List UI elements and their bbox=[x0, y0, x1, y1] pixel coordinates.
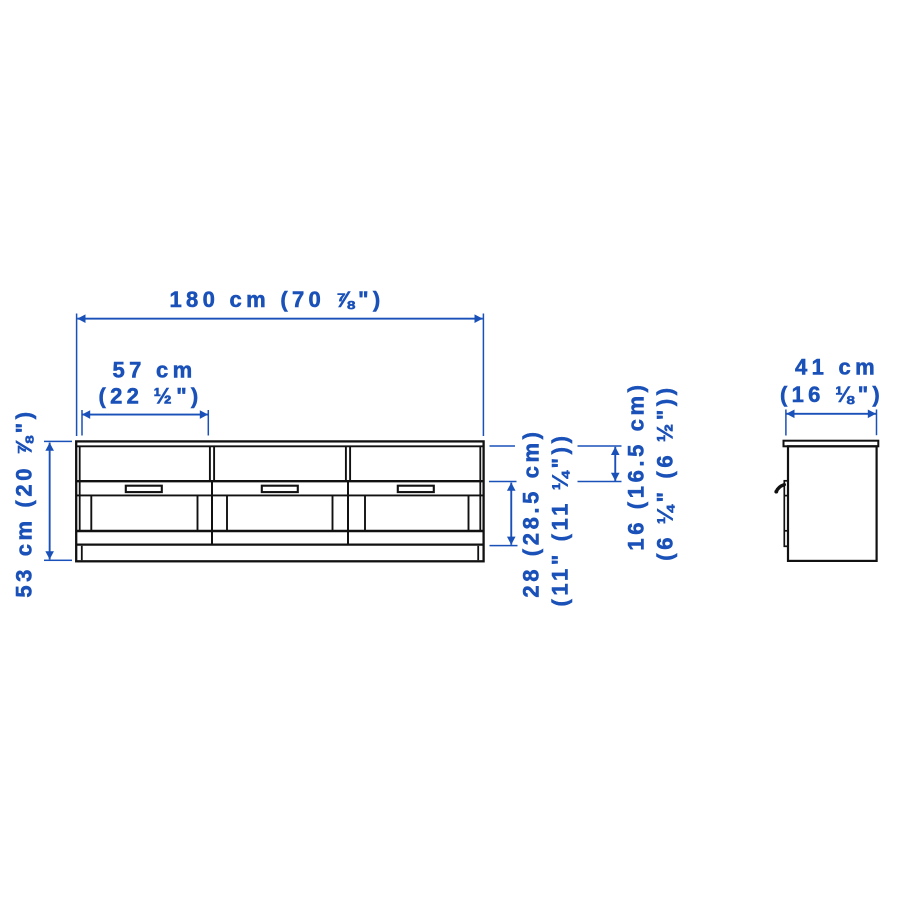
svg-text:180 cm (70 ⅞"): 180 cm (70 ⅞") bbox=[170, 287, 385, 312]
svg-text:(6 ¼" (6 ½")): (6 ¼" (6 ½")) bbox=[652, 384, 677, 560]
svg-text:41 cm: 41 cm bbox=[795, 355, 879, 380]
svg-text:(22 ½"): (22 ½") bbox=[98, 384, 202, 409]
svg-text:(16 ⅛"): (16 ⅛") bbox=[780, 382, 884, 407]
svg-text:16 (16.5 cm): 16 (16.5 cm) bbox=[623, 381, 648, 550]
svg-text:57 cm: 57 cm bbox=[113, 358, 197, 383]
svg-text:(11" (11 ¼")): (11" (11 ¼")) bbox=[547, 432, 572, 606]
svg-text:28 (28.5 cm): 28 (28.5 cm) bbox=[518, 428, 543, 597]
svg-text:53 cm (20 ⅞"): 53 cm (20 ⅞") bbox=[12, 408, 37, 597]
